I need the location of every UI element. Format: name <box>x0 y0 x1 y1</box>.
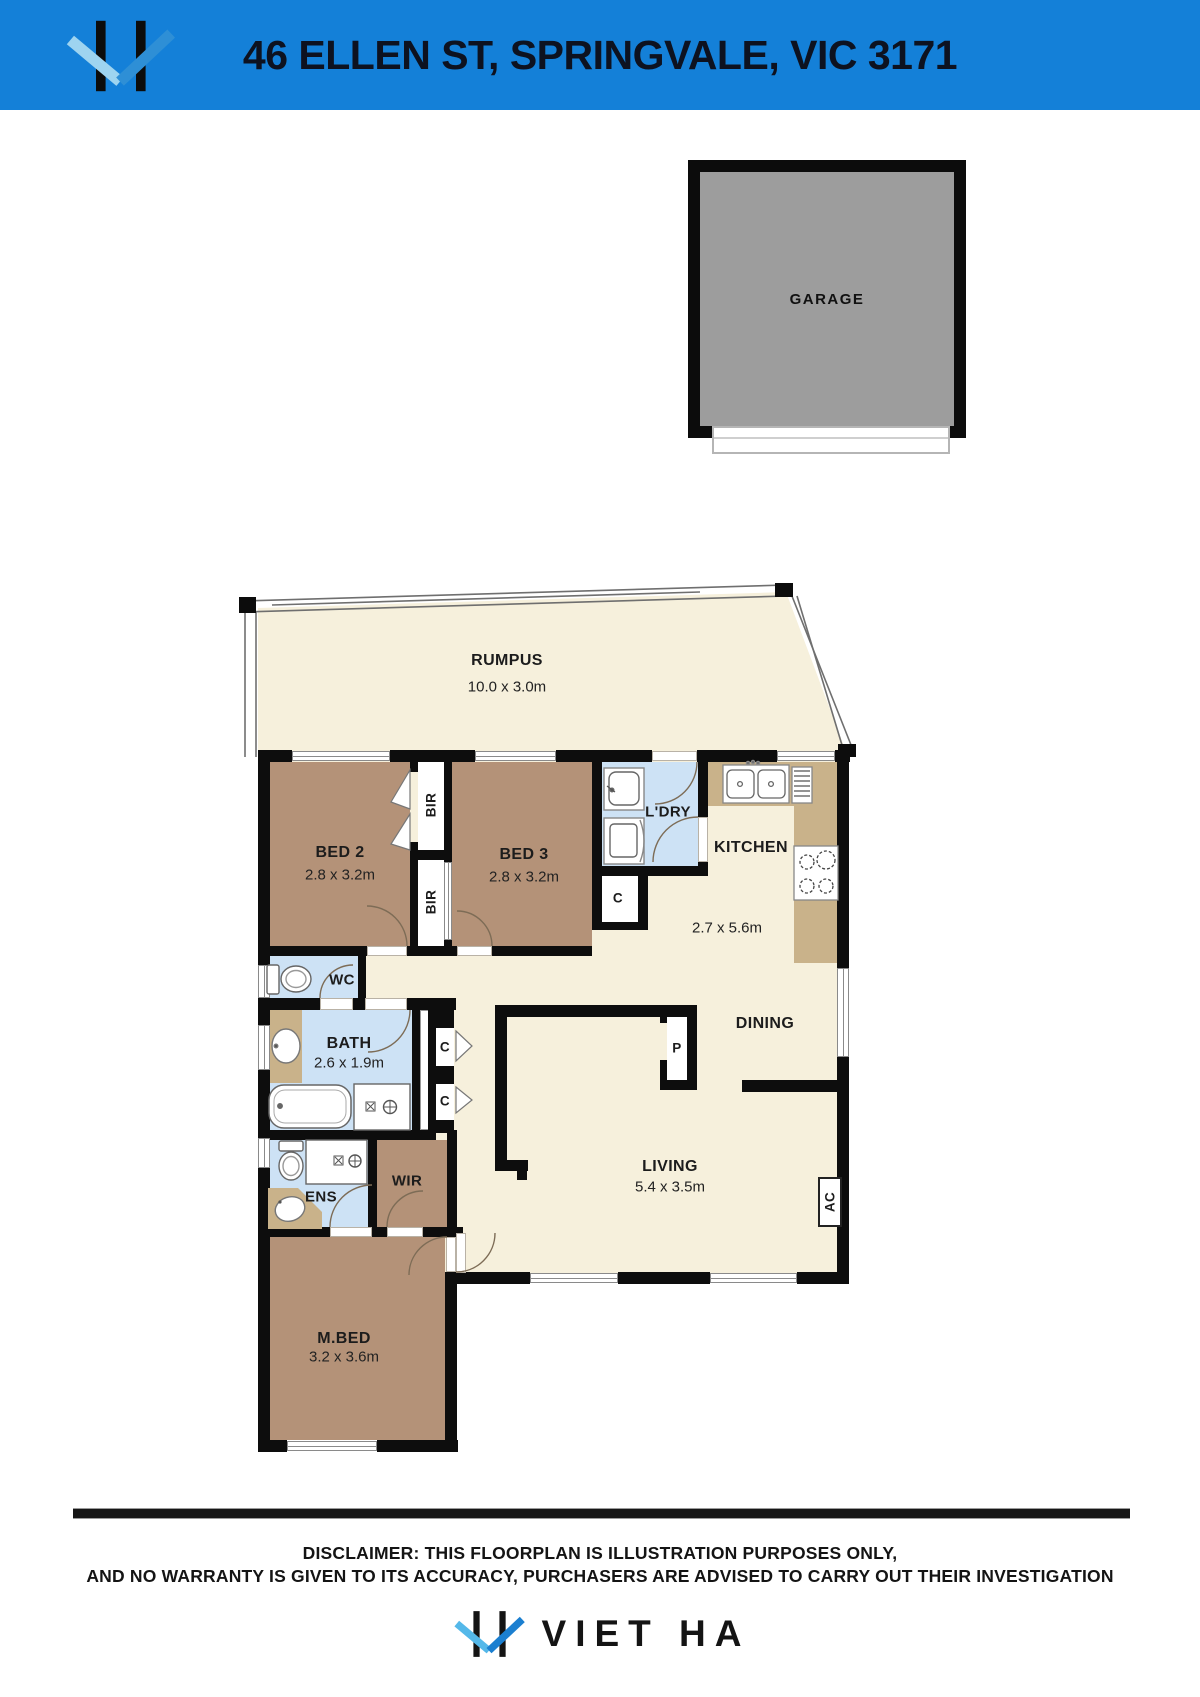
wall-segment <box>698 750 708 817</box>
window <box>710 1273 797 1283</box>
wall-segment <box>697 750 777 762</box>
wall-segment <box>492 946 592 956</box>
bed2-label: BED 2 <box>315 844 364 862</box>
window <box>530 1273 618 1283</box>
cupboard-hall-label: C <box>613 891 623 906</box>
wall-segment <box>687 1005 697 1090</box>
dining-label: DINING <box>736 1015 794 1033</box>
rumpus-dims: 10.0 x 3.0m <box>468 679 546 696</box>
wall-segment <box>410 750 418 772</box>
window <box>837 968 849 1057</box>
disclaimer: DISCLAIMER: THIS FLOORPLAN IS ILLUSTRATI… <box>0 1542 1200 1588</box>
wall-segment <box>436 1005 454 1028</box>
room-ensuite <box>266 1140 368 1227</box>
window <box>777 751 835 761</box>
kitchen-counter-top <box>708 762 838 806</box>
wall-segment <box>447 1130 457 1233</box>
disclaimer-line-1: DISCLAIMER: THIS FLOORPLAN IS ILLUSTRATI… <box>0 1542 1200 1565</box>
wall-segment <box>258 750 270 965</box>
wall-segment <box>517 1160 527 1180</box>
bed2-dims: 2.8 x 3.2m <box>305 867 375 884</box>
door-opening <box>446 1237 456 1272</box>
door-opening <box>330 1227 372 1237</box>
footer-brand: VIET HA <box>0 1608 1200 1660</box>
master-bed-dims: 3.2 x 3.6m <box>309 1349 379 1366</box>
window <box>258 965 270 998</box>
bed3-label: BED 3 <box>499 846 548 864</box>
wall-segment <box>258 998 320 1010</box>
wall-segment <box>353 998 365 1010</box>
wall-segment <box>358 956 366 998</box>
wall-segment <box>592 922 648 930</box>
window <box>258 1025 270 1070</box>
floorplan-page: 46 ELLEN ST, SPRINGVALE, VIC 3171 GARAGE <box>0 0 1200 1697</box>
wall-segment <box>258 1227 330 1237</box>
door-opening <box>365 998 407 1010</box>
disclaimer-line-2: AND NO WARRANTY IS GIVEN TO ITS ACCURACY… <box>0 1565 1200 1588</box>
rumpus-wall-corners <box>239 583 856 757</box>
rumpus-label: RUMPUS <box>471 652 543 670</box>
living-label: LIVING <box>642 1158 698 1176</box>
door-opening <box>387 1227 423 1237</box>
window <box>475 751 556 761</box>
wall-segment <box>258 1130 436 1140</box>
wall-segment <box>258 1070 270 1138</box>
wc-label: WC <box>329 972 355 989</box>
bed3-dims: 2.8 x 3.2m <box>489 869 559 886</box>
wall-segment <box>258 946 367 956</box>
wir-label: WIR <box>392 1173 422 1190</box>
divider-line <box>73 1508 1130 1519</box>
door-opening <box>698 817 708 862</box>
wall-segment <box>592 866 708 876</box>
wall-segment <box>742 1080 849 1092</box>
wall-segment <box>592 750 602 928</box>
ac-label: AC <box>823 1192 838 1212</box>
wall-segment <box>556 750 652 762</box>
door-opening <box>652 751 697 761</box>
wall-segment <box>377 1440 458 1452</box>
bath-label: BATH <box>327 1035 372 1053</box>
garage-door <box>712 426 950 454</box>
master-bed-label: M.BED <box>317 1330 371 1348</box>
wall-segment <box>445 1272 457 1452</box>
pantry-label: P <box>672 1041 681 1056</box>
footer-brand-text: VIET HA <box>542 1613 751 1655</box>
door-opening <box>320 998 353 1010</box>
header: 46 ELLEN ST, SPRINGVALE, VIC 3171 <box>0 0 1200 110</box>
page-title: 46 ELLEN ST, SPRINGVALE, VIC 3171 <box>243 32 957 79</box>
wall-segment <box>444 750 452 862</box>
window <box>287 1441 377 1451</box>
garage-room: GARAGE <box>688 160 966 438</box>
laundry-label: L'DRY <box>645 804 691 821</box>
wall-segment <box>258 1168 270 1452</box>
window <box>444 862 452 940</box>
wall-segment <box>428 1010 436 1133</box>
wall-segment <box>390 750 475 762</box>
bath-dims: 2.6 x 1.9m <box>314 1055 384 1072</box>
kitchen-dims: 2.7 x 5.6m <box>692 920 762 937</box>
garage-label: GARAGE <box>790 291 865 308</box>
wall-segment <box>660 1060 667 1088</box>
wall-segment <box>495 1005 507 1168</box>
kitchen-counter-right <box>794 806 838 963</box>
wall-segment <box>447 1272 530 1284</box>
bath-vanity-counter <box>266 1010 302 1083</box>
cupboard-2-label: C <box>440 1094 450 1109</box>
rumpus-window-walls <box>244 585 855 757</box>
brand-logo-icon <box>60 16 180 96</box>
window <box>258 1138 270 1168</box>
wall-segment <box>258 1440 287 1452</box>
wall-segment <box>368 1140 377 1229</box>
wall-segment <box>436 1066 454 1084</box>
living-dims: 5.4 x 3.5m <box>635 1179 705 1196</box>
room-rumpus-floor <box>258 592 848 757</box>
door-opening <box>456 1233 466 1273</box>
wall-segment <box>837 755 849 968</box>
footer-brand-icon <box>450 1608 528 1660</box>
door-opening <box>457 946 492 956</box>
wall-segment <box>407 946 457 956</box>
window <box>292 751 390 761</box>
bir-top-label: BIR <box>424 793 439 817</box>
wall-segment <box>660 1005 667 1023</box>
wall-segment <box>372 1227 387 1237</box>
wall-segment <box>412 1010 420 1132</box>
ensuite-label: ENS <box>305 1189 337 1206</box>
cupboard-1-label: C <box>440 1040 450 1055</box>
bir-bottom-label: BIR <box>424 890 439 914</box>
door-opening <box>367 946 407 956</box>
kitchen-label: KITCHEN <box>714 839 788 857</box>
wall-segment <box>618 1272 710 1284</box>
